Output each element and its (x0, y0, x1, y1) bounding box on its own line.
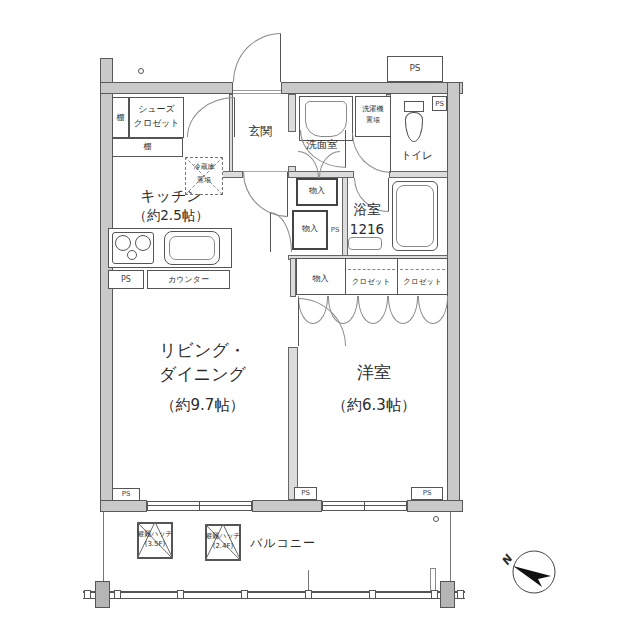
storage-label-1: 物入 (296, 186, 338, 196)
ps-label-western-right: PS (411, 489, 443, 497)
balcony-edge-left (103, 512, 104, 582)
door-arc-front-entrance (233, 33, 281, 82)
storage-label-3: 物入 (296, 274, 345, 284)
railing-post-3 (177, 590, 184, 599)
wall-outer-top-b (281, 82, 463, 94)
railing-post-8 (457, 590, 464, 599)
shoe-closet-label-2: クロゼット (129, 118, 184, 129)
entrance-threshold-line-1 (233, 90, 281, 91)
balcony-divider (308, 570, 309, 592)
door-arc-hall (243, 172, 288, 217)
shelf-label-wide: 棚 (112, 142, 183, 152)
closet-label-2: クロゼット (397, 277, 448, 286)
floorplan-canvas: PS 棚 シューズ クロゼット 棚 冷蔵庫 置場 PS カウンター 洗濯機 置場… (0, 0, 640, 640)
room-label-western: 洋室 (310, 362, 438, 382)
room-label-bathroom: 浴室 (344, 201, 390, 217)
stove-burner-1 (115, 235, 131, 251)
folding-door-arc-5 (418, 296, 448, 324)
room-label-entrance: 玄関 (233, 124, 288, 138)
room-label-kitchen: キッチン (110, 187, 232, 205)
ps-label-kitchen: PS (108, 275, 144, 285)
bathtub-inner (396, 185, 434, 247)
room-label-living-size: （約9.7帖） (120, 396, 285, 414)
ps-label-hall: PS (328, 226, 342, 234)
wall-outer-bottom-a (100, 500, 147, 512)
ps-label-western-left: PS (294, 489, 317, 497)
fridge-space-label-2: 置場 (185, 176, 223, 184)
toilet-bowl-icon (405, 112, 423, 142)
room-label-toilet: トイレ (394, 149, 440, 162)
wall-washroom-bottom-b (389, 171, 448, 178)
ps-label-toilet: PS (432, 100, 447, 108)
railing-post-4 (241, 590, 248, 599)
balcony-railing-top (83, 591, 465, 593)
stove-burner-2 (135, 235, 151, 251)
closet-pole-line-1 (348, 269, 395, 270)
folding-door-arc-4 (388, 296, 418, 324)
entrance-threshold-line-2 (233, 93, 281, 94)
room-label-bathroom-size: 1216 (344, 221, 390, 237)
door-arc-kitchen-entry (187, 97, 235, 137)
wall-outer-top-a (100, 82, 233, 94)
wall-entrance-right-a (288, 94, 296, 132)
room-label-living-1: リビング・ (120, 340, 285, 360)
toilet-tank-icon (404, 101, 424, 112)
railing-post-7 (431, 590, 438, 599)
counter-label: カウンター (147, 275, 230, 285)
door-arc-storage2 (270, 212, 292, 252)
shoe-closet-label-1: シューズ (129, 104, 184, 115)
window-living-tick (199, 501, 200, 511)
washer-space-label-2: 置場 (355, 116, 391, 124)
door-arc-toilet (352, 133, 391, 173)
closet-pole-line-2 (400, 269, 445, 270)
room-label-washroom: 洗面室 (296, 138, 348, 151)
window-western-tick (364, 501, 365, 511)
folding-door-arc-3 (358, 296, 388, 324)
closet-label-1: クロゼット (345, 277, 397, 286)
room-label-balcony: バルコニー (248, 536, 318, 550)
fridge-space-label-1: 冷蔵庫 (185, 163, 223, 171)
bath-shelf (348, 237, 382, 250)
wall-outer-bottom-b (252, 500, 322, 512)
room-label-kitchen-size: （約2.5帖） (110, 207, 232, 223)
sink-basin (169, 236, 215, 260)
ps-label-living: PS (112, 490, 140, 498)
hatch-floors-1: (3.5F) (137, 540, 173, 548)
balcony-edge-right (450, 512, 451, 582)
ps-label-top: PS (387, 63, 443, 74)
railing-post-2 (114, 590, 121, 599)
marker-circle-bottom (433, 516, 439, 522)
balcony-drainpipe (430, 568, 436, 592)
balcony-pillar-right (440, 581, 455, 608)
railing-post-1 (84, 590, 91, 599)
wall-outer-right (447, 82, 460, 512)
storage-label-2: 物入 (292, 224, 328, 234)
room-label-western-size: （約6.3帖） (310, 396, 438, 414)
railing-post-6 (369, 590, 376, 599)
hatch-floors-2: (2.4F) (205, 542, 241, 550)
stove-burner-3 (127, 250, 137, 260)
shelf-label-small: 棚 (112, 113, 129, 123)
balcony-pillar-left (95, 581, 110, 608)
wall-ld-western (288, 347, 298, 500)
railing-post-5 (305, 590, 312, 599)
washer-space-label-1: 洗濯機 (355, 105, 391, 113)
marker-circle-top (138, 68, 144, 74)
hatch-label-2: 避難ハッチ (205, 532, 241, 540)
room-label-living-2: ダイニング (120, 364, 285, 384)
hatch-label-1: 避難ハッチ (137, 530, 173, 538)
wall-outer-bottom-c (407, 500, 463, 512)
balcony-railing-bottom (83, 598, 465, 599)
